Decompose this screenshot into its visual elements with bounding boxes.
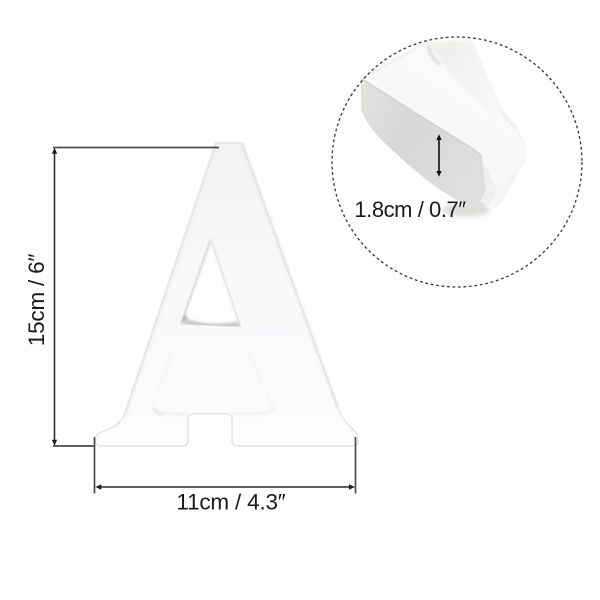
svg-text:15cm / 6″: 15cm / 6″ (24, 254, 49, 347)
svg-text:1.8cm / 0.7″: 1.8cm / 0.7″ (354, 197, 466, 222)
svg-text:11cm / 4.3″: 11cm / 4.3″ (176, 490, 285, 515)
